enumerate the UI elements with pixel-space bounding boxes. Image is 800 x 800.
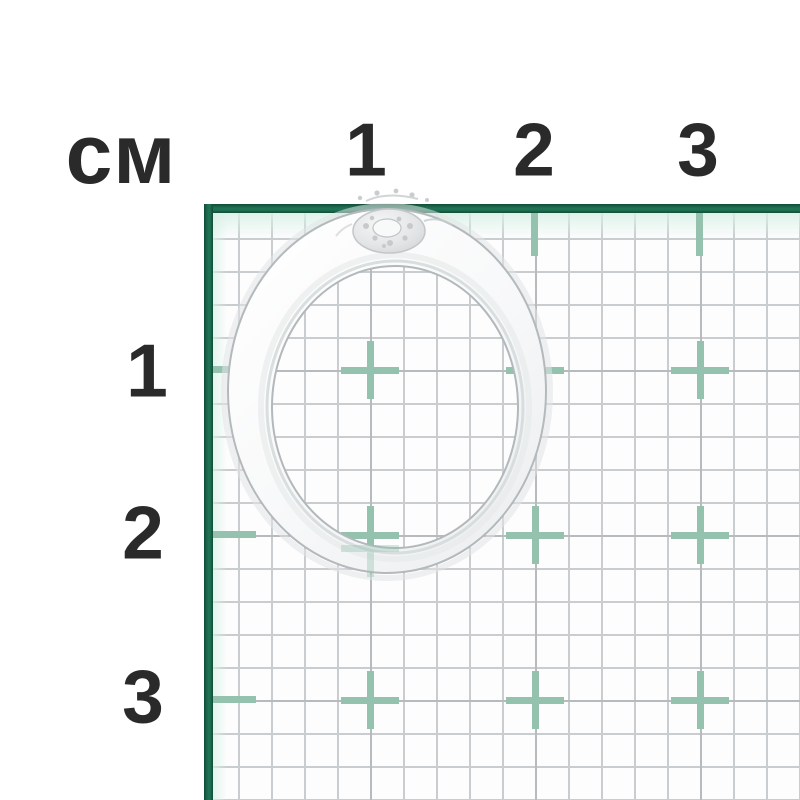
ring-band-bevel-outer	[261, 255, 529, 559]
top-scale-label-1: 1	[345, 113, 387, 188]
ring-inner-edge	[272, 266, 518, 548]
ring-band-bevel-inner	[267, 261, 523, 553]
top-scale-label-2: 2	[513, 113, 555, 188]
top-scale-label-3: 3	[677, 113, 719, 188]
left-scale-label-3: 3	[122, 660, 164, 735]
left-scale-label-1: 1	[126, 334, 168, 409]
unit-label-cm: см	[66, 112, 177, 196]
crosshair-mark-1-2-through-band	[341, 519, 399, 577]
left-scale-label-2: 2	[122, 496, 164, 571]
ring-size-measurement-diagram: см 1 2 3 1 2 3	[0, 0, 800, 800]
